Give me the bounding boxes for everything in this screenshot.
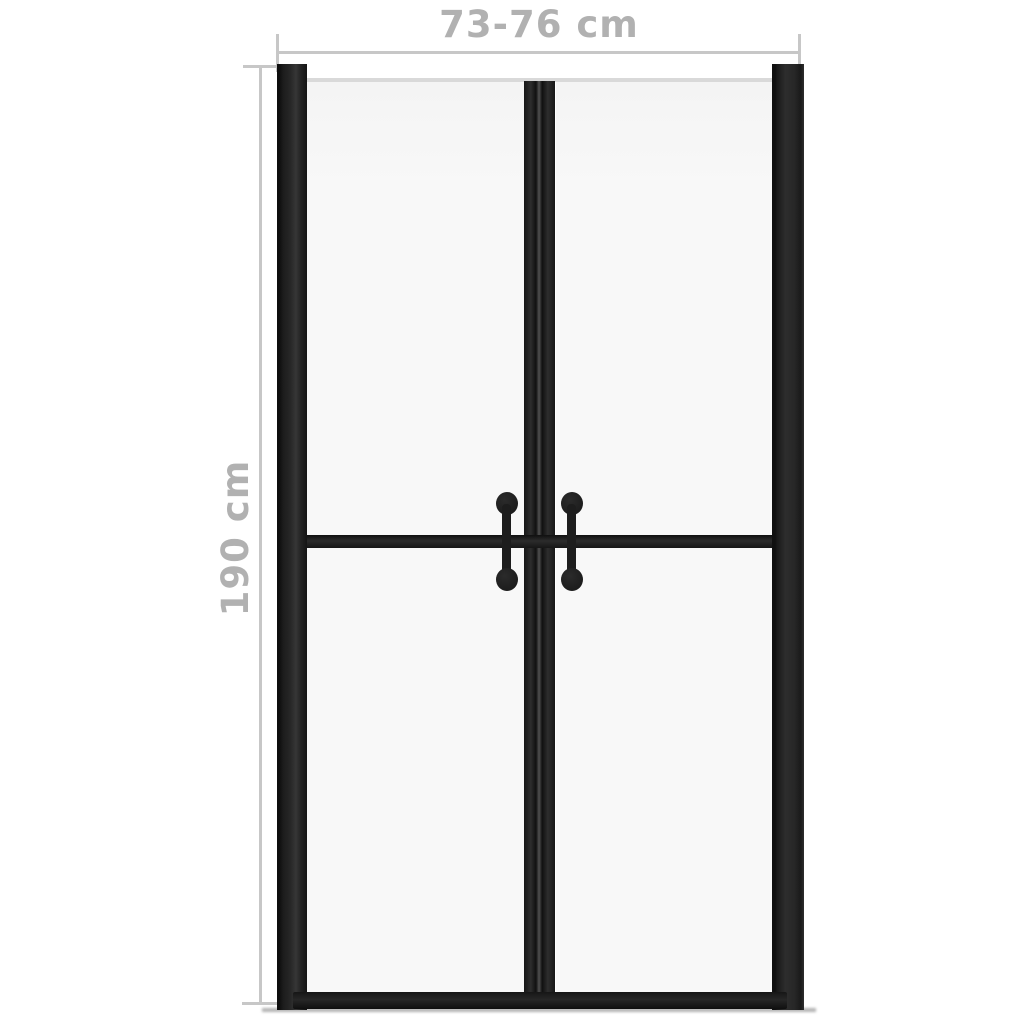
height-dimension-tick-top (243, 65, 278, 68)
width-dimension-label: 73-76 cm (277, 2, 801, 48)
bottom-rail (293, 992, 787, 1009)
height-dimension-tick-bottom (242, 1002, 277, 1005)
door-crossbar (307, 535, 773, 548)
height-dimension-label: 190 cm (215, 388, 257, 688)
shower-door-dimension-diagram: 73-76 cm 190 cm (0, 0, 1024, 1024)
handle-knob-bottom-icon (496, 568, 518, 591)
frame-post-left (277, 64, 307, 1010)
width-dimension-line (277, 51, 801, 54)
door-handle-left (495, 492, 518, 592)
handle-knob-bottom-icon (561, 568, 583, 591)
frame-post-right (772, 64, 804, 1010)
height-dimension-line (259, 66, 262, 1005)
door-handle-right (560, 492, 583, 592)
